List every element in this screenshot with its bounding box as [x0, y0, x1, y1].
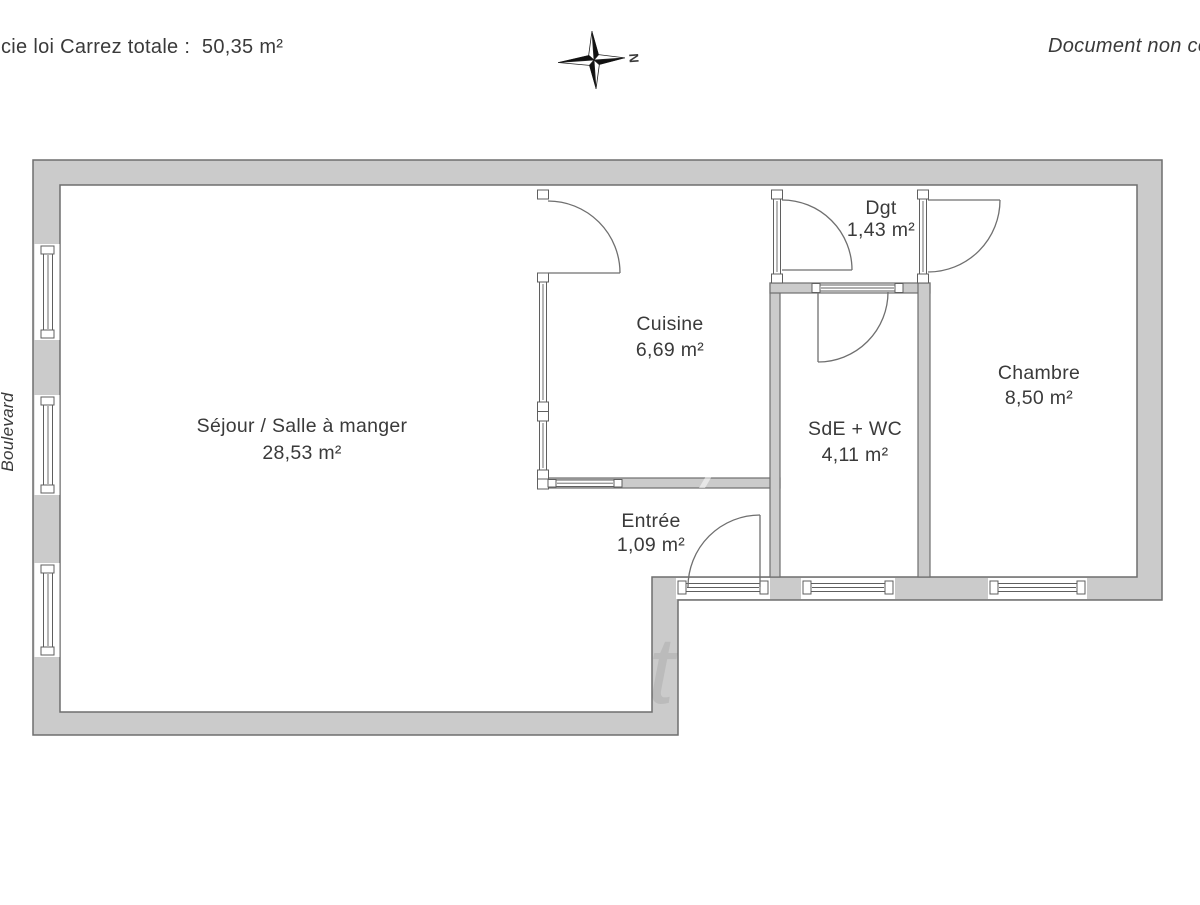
door-swing-sde — [818, 292, 888, 362]
room-label-sde: SdE + WC 4,11 m² — [808, 418, 902, 466]
room-label-cuisine: Cuisine 6,69 m² — [636, 313, 704, 361]
compass-icon: N — [556, 28, 643, 92]
room-name: SdE + WC — [808, 418, 902, 440]
window-symbol-left-3 — [35, 563, 60, 657]
room-area: 28,53 m² — [262, 442, 342, 464]
room-area: 6,69 m² — [636, 339, 704, 361]
door-swing-chambre — [928, 200, 1000, 272]
glazed-opening-dgt-sde — [812, 284, 903, 293]
door-threshold-entree — [676, 578, 770, 599]
interior-wall-sde-left — [770, 283, 780, 577]
room-area: 8,50 m² — [1005, 387, 1073, 409]
room-label-sejour: Séjour / Salle à manger 28,53 m² — [197, 415, 408, 464]
svg-text:t: t — [648, 618, 678, 724]
room-name: Chambre — [998, 362, 1080, 384]
room-name: Cuisine — [636, 313, 703, 335]
street-name-text: Boulevard — [0, 392, 17, 471]
glazed-partition-sejour-cuisine — [538, 190, 549, 489]
glazed-partition-cuisine-dgt — [772, 190, 783, 283]
door-swing-dgt — [782, 200, 852, 270]
glazed-partition-dgt-chambre — [918, 190, 929, 283]
room-area: 1,43 m² — [847, 219, 915, 241]
room-area: 4,11 m² — [822, 444, 889, 466]
disclaimer-text: Document non cor — [1048, 35, 1200, 57]
window-symbol-left-2 — [35, 395, 60, 495]
door-swing-cuisine — [548, 201, 620, 273]
room-label-chambre: Chambre 8,50 m² — [998, 362, 1080, 409]
room-name: Séjour / Salle à manger — [197, 415, 408, 437]
floor-plan-svg: cie loi Carrez totale : 50,35 m² Documen… — [0, 0, 1200, 900]
compass-north-letter: N — [626, 53, 642, 64]
window-symbol-chambre — [988, 578, 1087, 599]
room-label-dgt: Dgt 1,43 m² — [847, 197, 915, 241]
room-name: Dgt — [865, 197, 897, 219]
room-area: 1,09 m² — [617, 534, 685, 556]
room-name: Entrée — [621, 510, 680, 532]
room-label-entree: Entrée 1,09 m² — [617, 510, 685, 556]
glazed-strip-cuisine-wall — [548, 480, 622, 488]
door-swing-entree — [688, 515, 760, 587]
outer-walls — [33, 160, 1162, 735]
carrez-area-text: cie loi Carrez totale : 50,35 m² — [1, 36, 283, 58]
interior-wall-sde-chambre — [918, 283, 930, 577]
window-symbol-sde — [801, 578, 895, 599]
window-symbol-left-1 — [35, 244, 60, 340]
